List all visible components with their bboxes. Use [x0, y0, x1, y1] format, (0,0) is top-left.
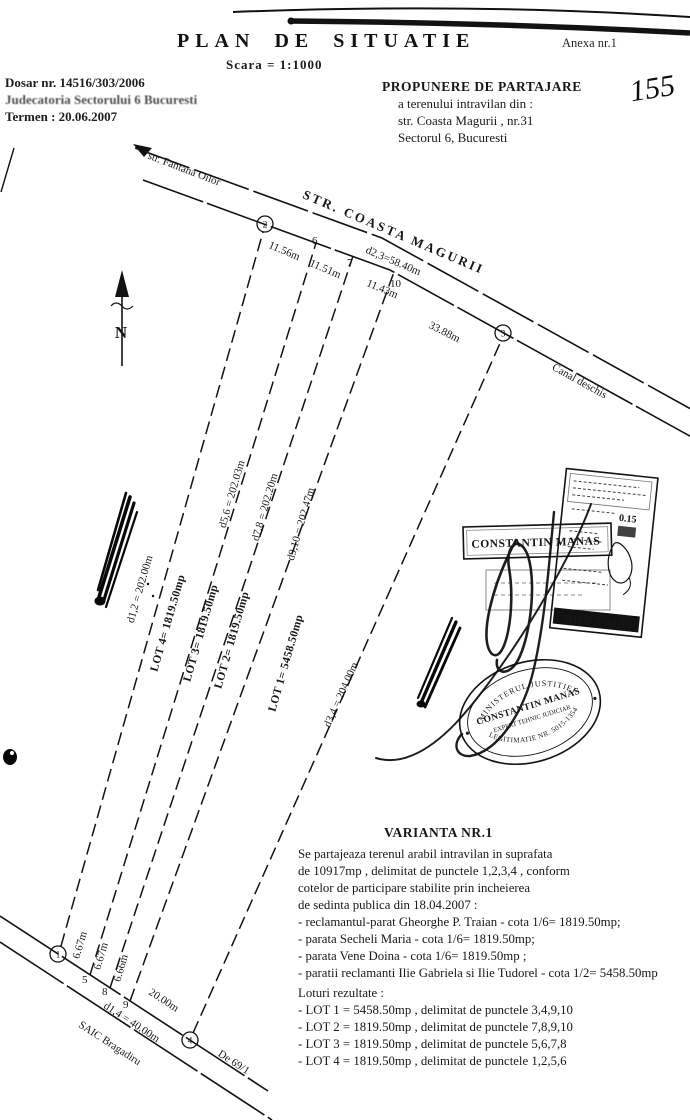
scan-streaks	[1, 8, 690, 192]
lot-result-line: - LOT 4 = 1819.50mp , delimitat de punct…	[298, 1053, 690, 1070]
dim-d34-label: d3,4 = 204.00m	[322, 660, 362, 729]
lot3-label: LOT 3= 1819.50mp	[182, 583, 221, 683]
variant-title: VARIANTA NR.1	[384, 824, 690, 841]
variant-line: cotelor de participare stabilite prin in…	[298, 880, 690, 897]
point-label-5: 5	[82, 974, 88, 986]
dim-s103-label: 33.88m	[427, 319, 463, 345]
dim-s15-label: 6.67m	[71, 930, 90, 960]
north-label: N	[115, 323, 128, 342]
point-label-3: 3	[501, 330, 506, 340]
round-stamp: MINISTERUL JUSTITIEI LEGITIMATIE NR. 501…	[447, 643, 614, 781]
dim-d78-label: d7,8 = 202.20m	[250, 472, 281, 543]
top-road: str. Fantana Oilor STR. COASTA MAGURII d…	[133, 144, 690, 445]
point-label-9: 9	[123, 999, 129, 1011]
lot1-label: LOT 1= 5458.50mp	[267, 613, 306, 713]
point-label-1: 1	[56, 951, 61, 961]
bottom-road: 20.00m d1,4 = 40.00m SAIC Bragadiru De 6…	[0, 916, 272, 1120]
dim-d12-label: d1,2 = 202.00m	[125, 554, 156, 625]
dim-s58-label: 6.67m	[92, 941, 111, 971]
variant-line: de 10917mp , delimitat de punctele 1,2,3…	[298, 863, 690, 880]
lot-result-line: - LOT 2 = 1819.50mp , delimitat de punct…	[298, 1019, 690, 1036]
point-label-6: 6	[312, 235, 318, 247]
dim-s94-label: 20.00m	[146, 986, 181, 1014]
point-label-7: 7	[347, 257, 353, 269]
lots-result-title: Loturi rezultate :	[298, 985, 690, 1002]
dim-s67-label: 11.51m	[308, 257, 343, 281]
point-label-8: 8	[102, 986, 108, 998]
variant-line: - reclamantul-parat Gheorghe P. Traian -…	[298, 914, 690, 931]
variant-line: Se partajeaza terenul arabil intravilan …	[298, 846, 690, 863]
variant-line: - paratii reclamanti Ilie Gabriela si Il…	[298, 965, 690, 982]
lot2-label: LOT 2= 1819.50mp	[213, 590, 252, 690]
dim-d23-label: d2,3=58.40m	[364, 244, 423, 278]
bottom-dimensions: 6.67m 6.67m 6.66m	[71, 930, 131, 983]
variant-block: VARIANTA NR.1 Se partajeaza terenul arab…	[298, 824, 690, 1070]
variant-line: de sedinta publica din 18.04.2007 :	[298, 897, 690, 914]
dim-s26-label: 11.56m	[267, 239, 302, 263]
dim-s89-label: 6.66m	[112, 953, 131, 983]
parcel-line-d12	[61, 232, 263, 946]
variant-line: - parata Secheli Maria - cota 1/6= 1819.…	[298, 931, 690, 948]
street-de691-label: De 69/1	[216, 1048, 252, 1077]
point-label-2: 2	[263, 221, 268, 231]
point-label-4: 4	[188, 1037, 193, 1047]
fiscal-stamp-value: 0.15	[618, 513, 637, 526]
dim-d910-label: d9,10 = 202.47m	[285, 486, 317, 562]
lot4-label: LOT 4= 1819.50mp	[149, 573, 188, 673]
name-stamp: CONSTANTIN MANAS	[463, 523, 612, 559]
lot-result-line: - LOT 1 = 5458.50mp , delimitat de punct…	[298, 1002, 690, 1019]
lot-result-line: - LOT 3 = 1819.50mp , delimitat de punct…	[298, 1036, 690, 1053]
scanned-site-plan-document: PLAN DE SITUATIE Anexa nr.1 Scara = 1:10…	[0, 0, 690, 1120]
name-stamp-text: CONSTANTIN MANAS	[471, 535, 600, 550]
street-fantana-label: str. Fantana Oilor	[146, 150, 222, 189]
canal-label: Canal deschis	[550, 361, 609, 401]
north-arrow-icon: N	[111, 270, 133, 366]
dim-d56-label: d5,6 = 202.03m	[217, 459, 248, 530]
variant-line: - parata Vene Doina - cota 1/6= 1819.50m…	[298, 948, 690, 965]
